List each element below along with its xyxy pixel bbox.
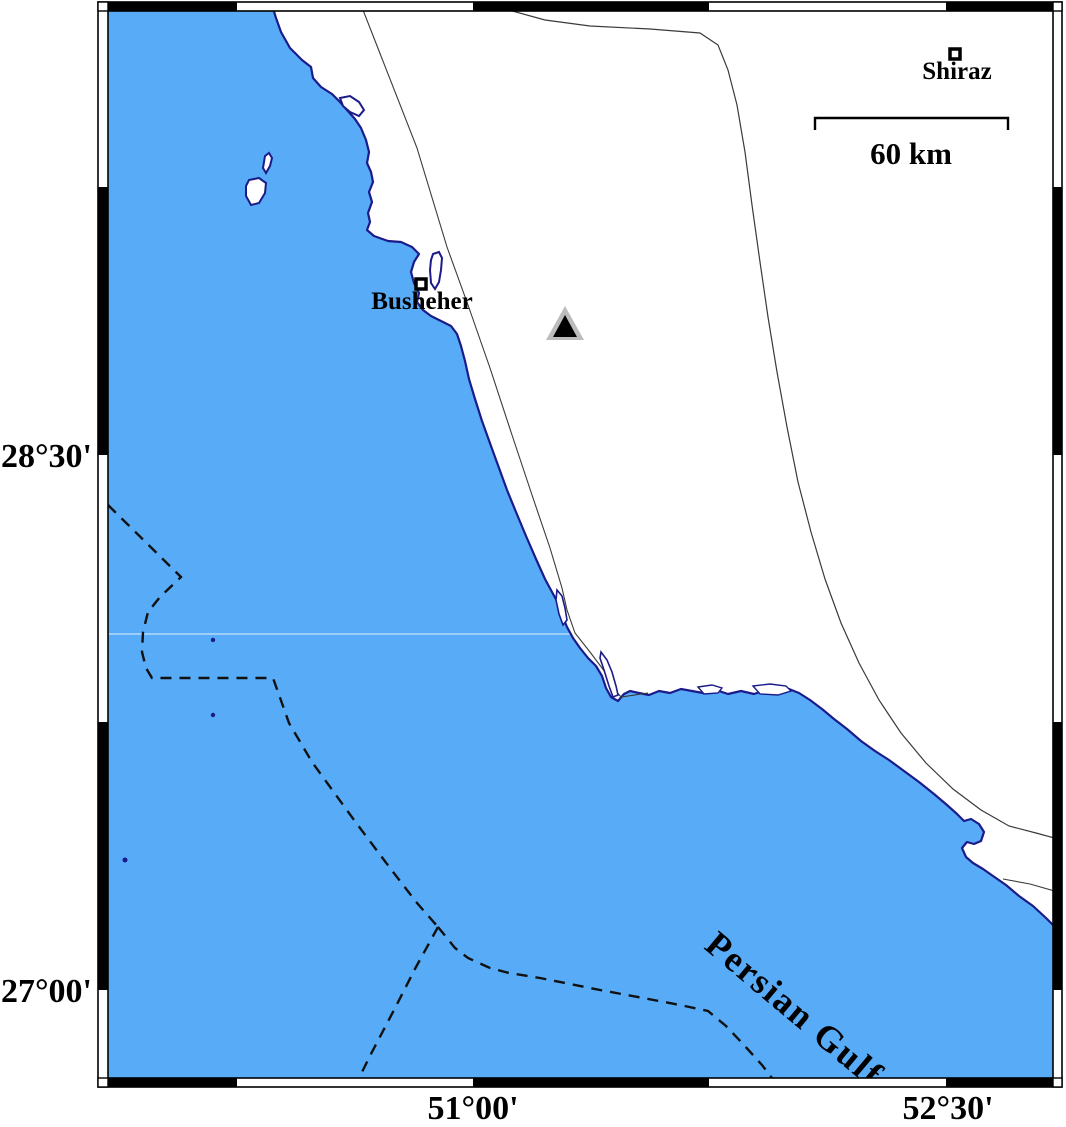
scale-bar-label: 60 km: [870, 136, 952, 171]
islet-dot-2: [211, 713, 215, 717]
map-figure: Persian Gulf Busheher Shiraz 60 km: [0, 0, 1066, 1127]
scale-bar: 60 km: [815, 118, 1008, 171]
islet-dot-1: [211, 638, 215, 642]
frame-top-seg3: [946, 2, 1053, 11]
frame-corner-br: [1053, 1078, 1062, 1087]
frame-corner-tl: [98, 2, 108, 11]
latitude-label-27-00: 27°00': [1, 973, 92, 1010]
frame-right-seg1: [1053, 187, 1062, 455]
coastal-lagoon-strip-2: [753, 684, 791, 695]
frame-top-seg2: [473, 2, 709, 11]
island-busheher: [430, 252, 442, 289]
frame-left-seg1: [98, 187, 108, 455]
longitude-label-51-00: 51°00': [427, 1090, 518, 1127]
busheher-label: Busheher: [371, 288, 472, 315]
frame-left-seg2: [98, 722, 108, 990]
longitude-label-52-30: 52°30': [902, 1090, 993, 1127]
frame-bottom-seg2: [473, 1078, 709, 1087]
frame-bottom-seg3: [946, 1078, 1053, 1087]
map-canvas: Persian Gulf Busheher Shiraz 60 km: [0, 0, 1066, 1127]
frame-bottom-seg1: [108, 1078, 237, 1087]
shiraz-label: Shiraz: [922, 58, 991, 85]
islet-dot-3: [123, 858, 128, 863]
frame-corner-bl: [98, 1078, 108, 1087]
station-marker: [546, 306, 584, 340]
frame-right-seg2: [1053, 722, 1062, 990]
frame-top-seg1: [108, 2, 237, 11]
frame-corner-tr: [1053, 2, 1062, 11]
latitude-label-28-30: 28°30': [1, 438, 92, 475]
scale-bar-bracket: [815, 118, 1008, 130]
city-shiraz: Shiraz: [922, 49, 991, 85]
